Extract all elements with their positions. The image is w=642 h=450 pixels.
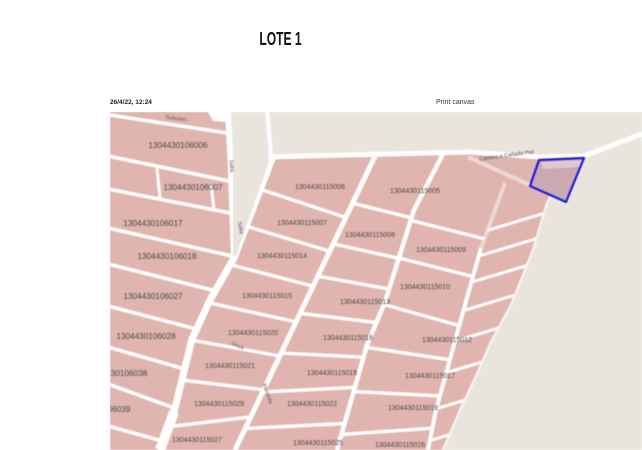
svg-text:1304430115021: 1304430115021 bbox=[205, 363, 255, 370]
svg-text:1304430115012: 1304430115012 bbox=[422, 337, 472, 344]
svg-text:1304430115025: 1304430115025 bbox=[293, 440, 343, 447]
svg-text:1304430115013: 1304430115013 bbox=[340, 299, 390, 306]
svg-text:1304430106018: 1304430106018 bbox=[137, 252, 197, 261]
svg-text:1304430115010: 1304430115010 bbox=[400, 284, 450, 291]
svg-text:06039: 06039 bbox=[108, 405, 131, 414]
svg-text:1304430115019: 1304430115019 bbox=[388, 405, 438, 412]
svg-text:30106038: 30106038 bbox=[111, 369, 148, 378]
svg-text:1304430106017: 1304430106017 bbox=[123, 219, 183, 228]
svg-text:1304430115016: 1304430115016 bbox=[323, 335, 373, 342]
svg-text:1304430115022: 1304430115022 bbox=[287, 401, 337, 408]
svg-text:1304430115014: 1304430115014 bbox=[257, 253, 307, 260]
svg-text:1304430115017: 1304430115017 bbox=[405, 373, 455, 380]
svg-text:1304430115027: 1304430115027 bbox=[172, 437, 222, 444]
svg-text:1304430106027: 1304430106027 bbox=[123, 292, 183, 301]
svg-text:Salta: Salta bbox=[228, 159, 235, 173]
svg-text:1304430115029: 1304430115029 bbox=[194, 401, 244, 408]
svg-text:1304430115026: 1304430115026 bbox=[375, 442, 425, 449]
svg-text:1304430106006: 1304430106006 bbox=[148, 141, 208, 150]
svg-text:1304430115007: 1304430115007 bbox=[277, 220, 327, 227]
svg-text:1304430115005: 1304430115005 bbox=[390, 188, 440, 195]
svg-text:1304430115020: 1304430115020 bbox=[228, 330, 278, 337]
svg-text:1304430115019: 1304430115019 bbox=[307, 370, 357, 377]
svg-text:1304430115015: 1304430115015 bbox=[242, 293, 292, 300]
svg-text:1304430115009: 1304430115009 bbox=[416, 247, 466, 254]
svg-text:1304430106028: 1304430106028 bbox=[116, 332, 176, 341]
svg-text:1304430115006: 1304430115006 bbox=[295, 184, 345, 191]
svg-text:1304430106007: 1304430106007 bbox=[163, 183, 223, 192]
svg-text:1304430115008: 1304430115008 bbox=[345, 232, 395, 239]
